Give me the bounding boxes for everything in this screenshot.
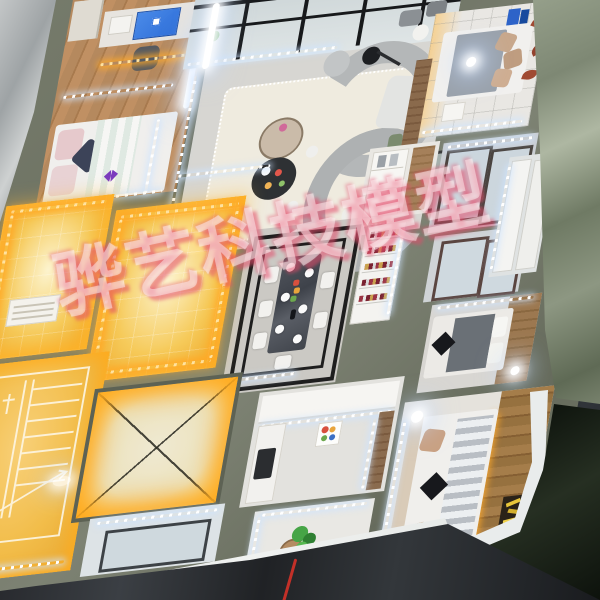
balloon-dot — [321, 426, 329, 434]
bed — [423, 308, 514, 379]
pillow-tan — [418, 428, 447, 452]
duvet-striped — [84, 115, 142, 200]
pillow-white — [491, 316, 509, 338]
photo-canvas: 骅艺科技模型 — [0, 0, 600, 600]
art-mark — [506, 498, 521, 508]
ceiling-vent — [5, 294, 61, 327]
nightstand — [441, 102, 466, 123]
balloon-art-decal — [315, 420, 343, 447]
vent-slat — [11, 314, 52, 321]
balloon-dot — [329, 426, 336, 433]
room-kitchen — [239, 376, 405, 508]
pillow-white — [486, 342, 504, 364]
led-strip-warm — [0, 215, 14, 353]
led-strip — [63, 83, 174, 99]
bed — [432, 22, 535, 102]
monitor-logo — [151, 17, 160, 26]
outdoor-table — [411, 24, 430, 42]
wardrobe — [67, 0, 104, 42]
balloon-dot — [329, 434, 336, 441]
printer — [108, 15, 133, 36]
railing-post — [356, 0, 372, 46]
railing-post — [296, 0, 312, 53]
pillow-pink — [47, 164, 78, 197]
room-bedroom-dark — [416, 293, 542, 394]
balloon-dot — [321, 435, 328, 442]
room-skylight-cross — [71, 372, 243, 523]
railing-post — [236, 0, 252, 60]
